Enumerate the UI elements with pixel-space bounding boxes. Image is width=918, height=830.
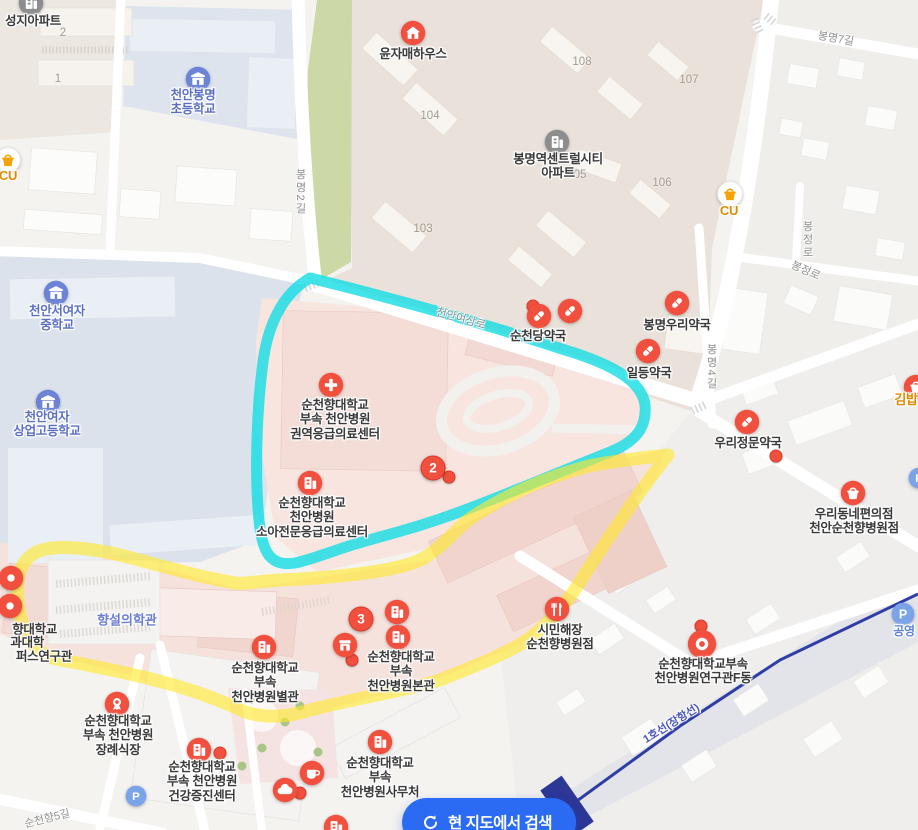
cheonan-seo-girls-middle--school-icon[interactable] (43, 280, 69, 306)
cheonan-bongmyeong-elementary-label[interactable]: 천안봉명초등학교 (171, 88, 216, 117)
funeral-hall-label[interactable]: 순천향대학교부속 천안병원장례식장 (83, 714, 153, 758)
road-label: 봉명4길 (703, 343, 719, 390)
numbered-marker-2[interactable]: 2 (421, 456, 446, 481)
cheonan-girls-commercial-high-label[interactable]: 천안여자상업고등학교 (13, 410, 80, 439)
yunjamae-house--house-icon[interactable] (400, 20, 426, 46)
cu-bongmyeong-west-label[interactable]: CU (0, 169, 17, 184)
building-number: 104 (420, 110, 439, 122)
svg-text:P: P (132, 791, 140, 803)
building-number: 103 (413, 223, 432, 235)
pediatric-emergency-center--building-icon[interactable] (297, 470, 323, 496)
gimbap-shop-label[interactable]: 김밥 (894, 393, 917, 408)
building-number: 2 (60, 27, 66, 39)
poi-dot-marker[interactable] (214, 747, 227, 760)
building-number: 107 (679, 74, 698, 86)
seongji-apartment-label[interactable]: 성지아파트 (5, 14, 61, 29)
simin-haejang-label[interactable]: 시민해장순천향병원점 (526, 623, 593, 652)
hospital-research-f-label[interactable]: 순천향대학교부속천안병원연구관F동 (655, 657, 752, 686)
search-current-map-button[interactable]: 현 지도에서 검색 (402, 798, 576, 830)
public-parking--parking-icon[interactable]: P (891, 602, 915, 626)
public-parking-label[interactable]: 공영 (893, 624, 914, 639)
woori-jeongmun-pharmacy--pill-icon[interactable] (734, 409, 760, 435)
coffee-shop--coffee-icon[interactable] (299, 760, 325, 786)
bongmyeong-woori-pharmacy-label[interactable]: 봉명우리약국 (643, 318, 710, 333)
search-button-label: 현 지도에서 검색 (448, 811, 552, 830)
pediatric-emergency-center-label[interactable]: 순천향대학교천안병원소아전문응급의료센터 (256, 496, 368, 540)
cheonan-seo-girls-middle-label[interactable]: 천안서여자중학교 (29, 304, 85, 333)
numbered-marker-3[interactable]: 3 (349, 607, 374, 632)
regional-emergency-center-label[interactable]: 순천향대학교부속 천안병원권역응급의료센터 (290, 398, 380, 442)
woori-convenience--basket-icon[interactable] (840, 480, 866, 506)
partial-poi-bottom--building-icon[interactable] (323, 814, 349, 830)
suncheondang-pharmacy--pill-icon[interactable] (526, 303, 552, 329)
hospital-research-f--ring-icon[interactable] (687, 629, 717, 659)
ildeung-pharmacy-label[interactable]: 일등약국 (627, 366, 672, 381)
poi-dot-marker[interactable] (770, 450, 783, 463)
pharmacy-unnamed--pill-icon[interactable] (557, 298, 583, 324)
cloud-poi--cloud-icon[interactable] (272, 777, 298, 803)
building-number: 106 (652, 177, 671, 189)
hospital-office-label[interactable]: 순천향대학교부속천안병원사무처 (341, 756, 419, 800)
regional-emergency-center--hospital-cross-icon[interactable] (318, 372, 344, 398)
cu-bongmyeong-east-label[interactable]: CU (720, 204, 738, 219)
building-number: 1 (55, 73, 61, 85)
suncheondang-pharmacy-label[interactable]: 순천당약국 (510, 329, 566, 344)
woori-convenience-label[interactable]: 우리동네편의점천안순천향병원점 (809, 507, 899, 536)
bongmyeong-woori-pharmacy--pill-icon[interactable] (664, 290, 690, 316)
hospital-store--store-icon[interactable] (332, 632, 358, 658)
cutoff-label: 퍼스연구관 (16, 646, 72, 665)
hospital-annex--building-icon[interactable] (251, 634, 277, 660)
campus-building-label: 향설의학관 (97, 610, 157, 629)
hospital-office--building-icon[interactable] (367, 729, 393, 755)
refresh-icon (422, 814, 439, 830)
svg-text:P: P (899, 608, 907, 622)
map-canvas[interactable]: 성지아파트천안봉명초등학교CU윤자매하우스봉명역센트럴시티아파트CU천안서여자중… (0, 0, 918, 830)
hospital-annex-label[interactable]: 순천향대학교부속천안병원별관 (231, 661, 298, 705)
road-label: 봉정로 (799, 221, 815, 260)
simin-haejang--restaurant-icon[interactable] (544, 596, 570, 622)
bongmyeong-central-city-apt-label[interactable]: 봉명역센트럴시티아파트 (513, 152, 603, 181)
yunjamae-house-label[interactable]: 윤자매하우스 (379, 47, 446, 62)
health-promotion-center-label[interactable]: 순천향대학교부속 천안병원건강증진센터 (167, 760, 237, 804)
road-label: 봉명2길 (292, 168, 308, 215)
building-number: 108 (572, 56, 591, 68)
parking-west--parking-icon[interactable]: P (125, 785, 147, 807)
ildeung-pharmacy--pill-icon[interactable] (635, 338, 661, 364)
hospital-main-upper-icon--building-icon[interactable] (384, 599, 410, 625)
hospital-main--building-icon[interactable] (385, 624, 411, 650)
hospital-main-label[interactable]: 순천향대학교부속천안병원본관 (367, 650, 434, 694)
basemap-tiles (0, 0, 918, 830)
woori-jeongmun-pharmacy-label[interactable]: 우리정문약국 (714, 436, 781, 451)
pin-west-2--dot-pin-icon[interactable] (0, 593, 23, 619)
parking-east-partial--parking-icon[interactable]: P (908, 467, 918, 489)
pin-west-1--dot-pin-icon[interactable] (0, 565, 24, 591)
